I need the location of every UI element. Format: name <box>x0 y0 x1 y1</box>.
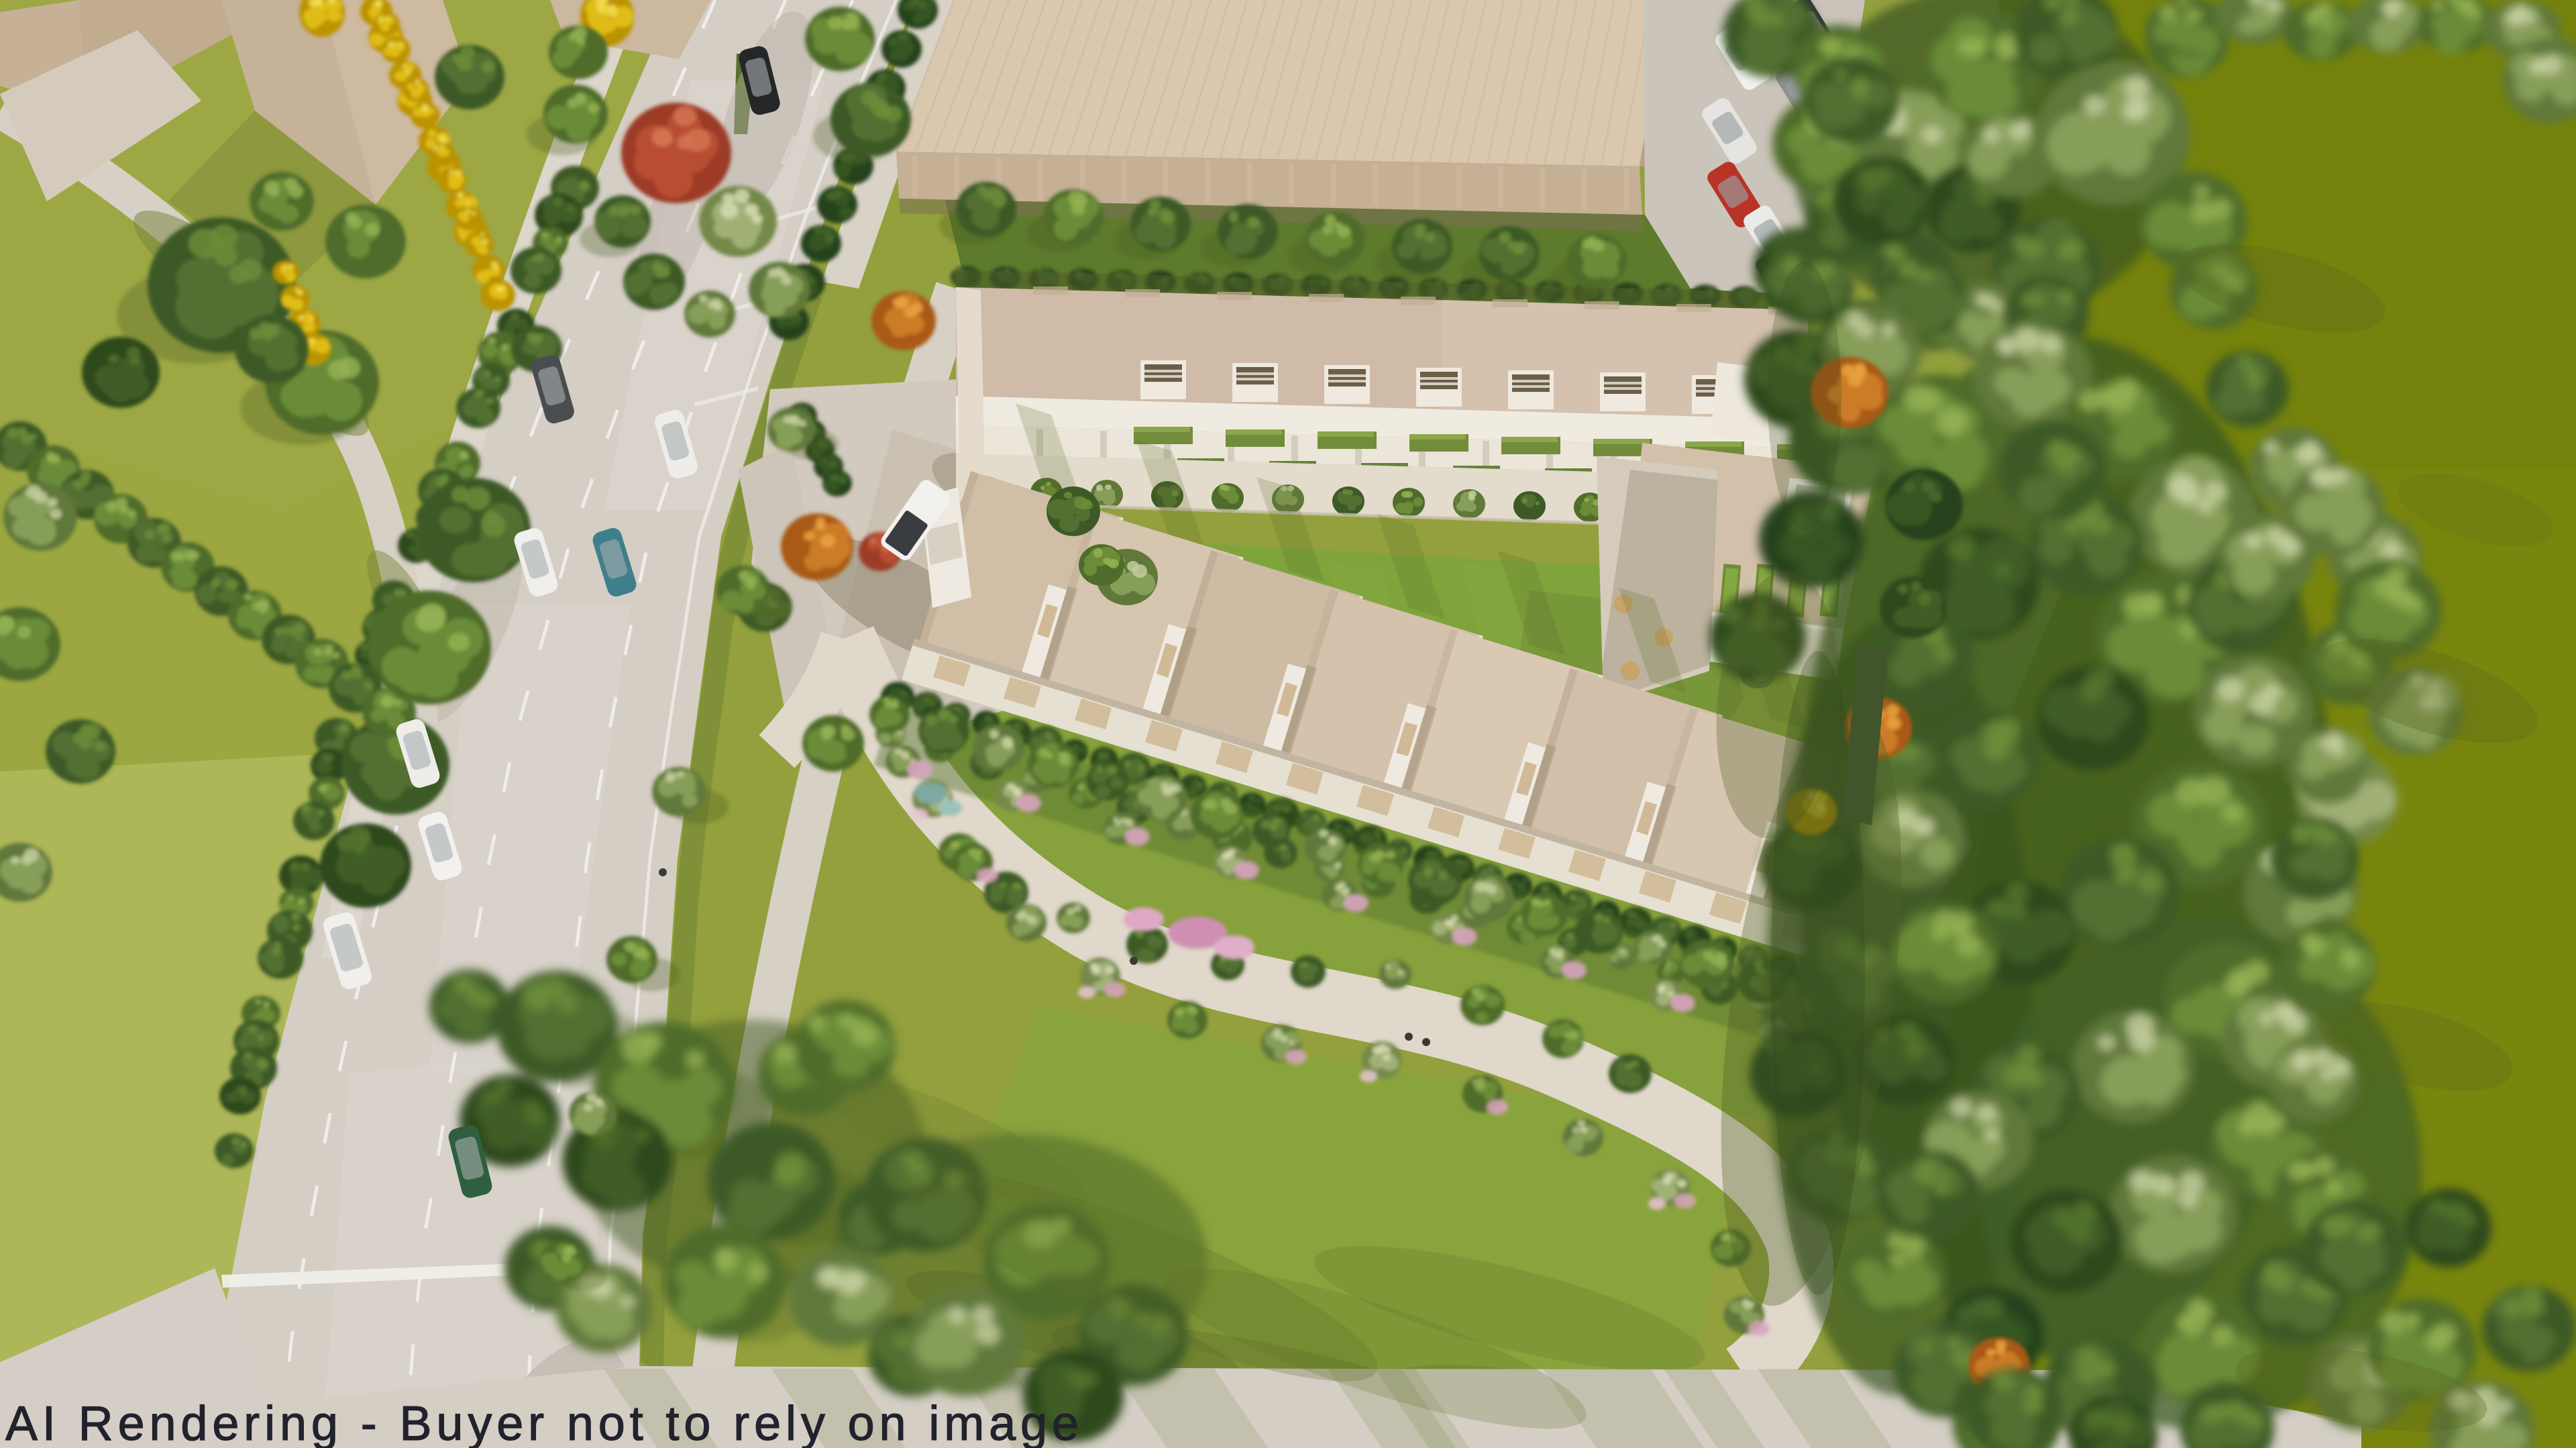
svg-text:AI Rendering - Buyer not to re: AI Rendering - Buyer not to rely on imag… <box>5 1397 1079 1448</box>
